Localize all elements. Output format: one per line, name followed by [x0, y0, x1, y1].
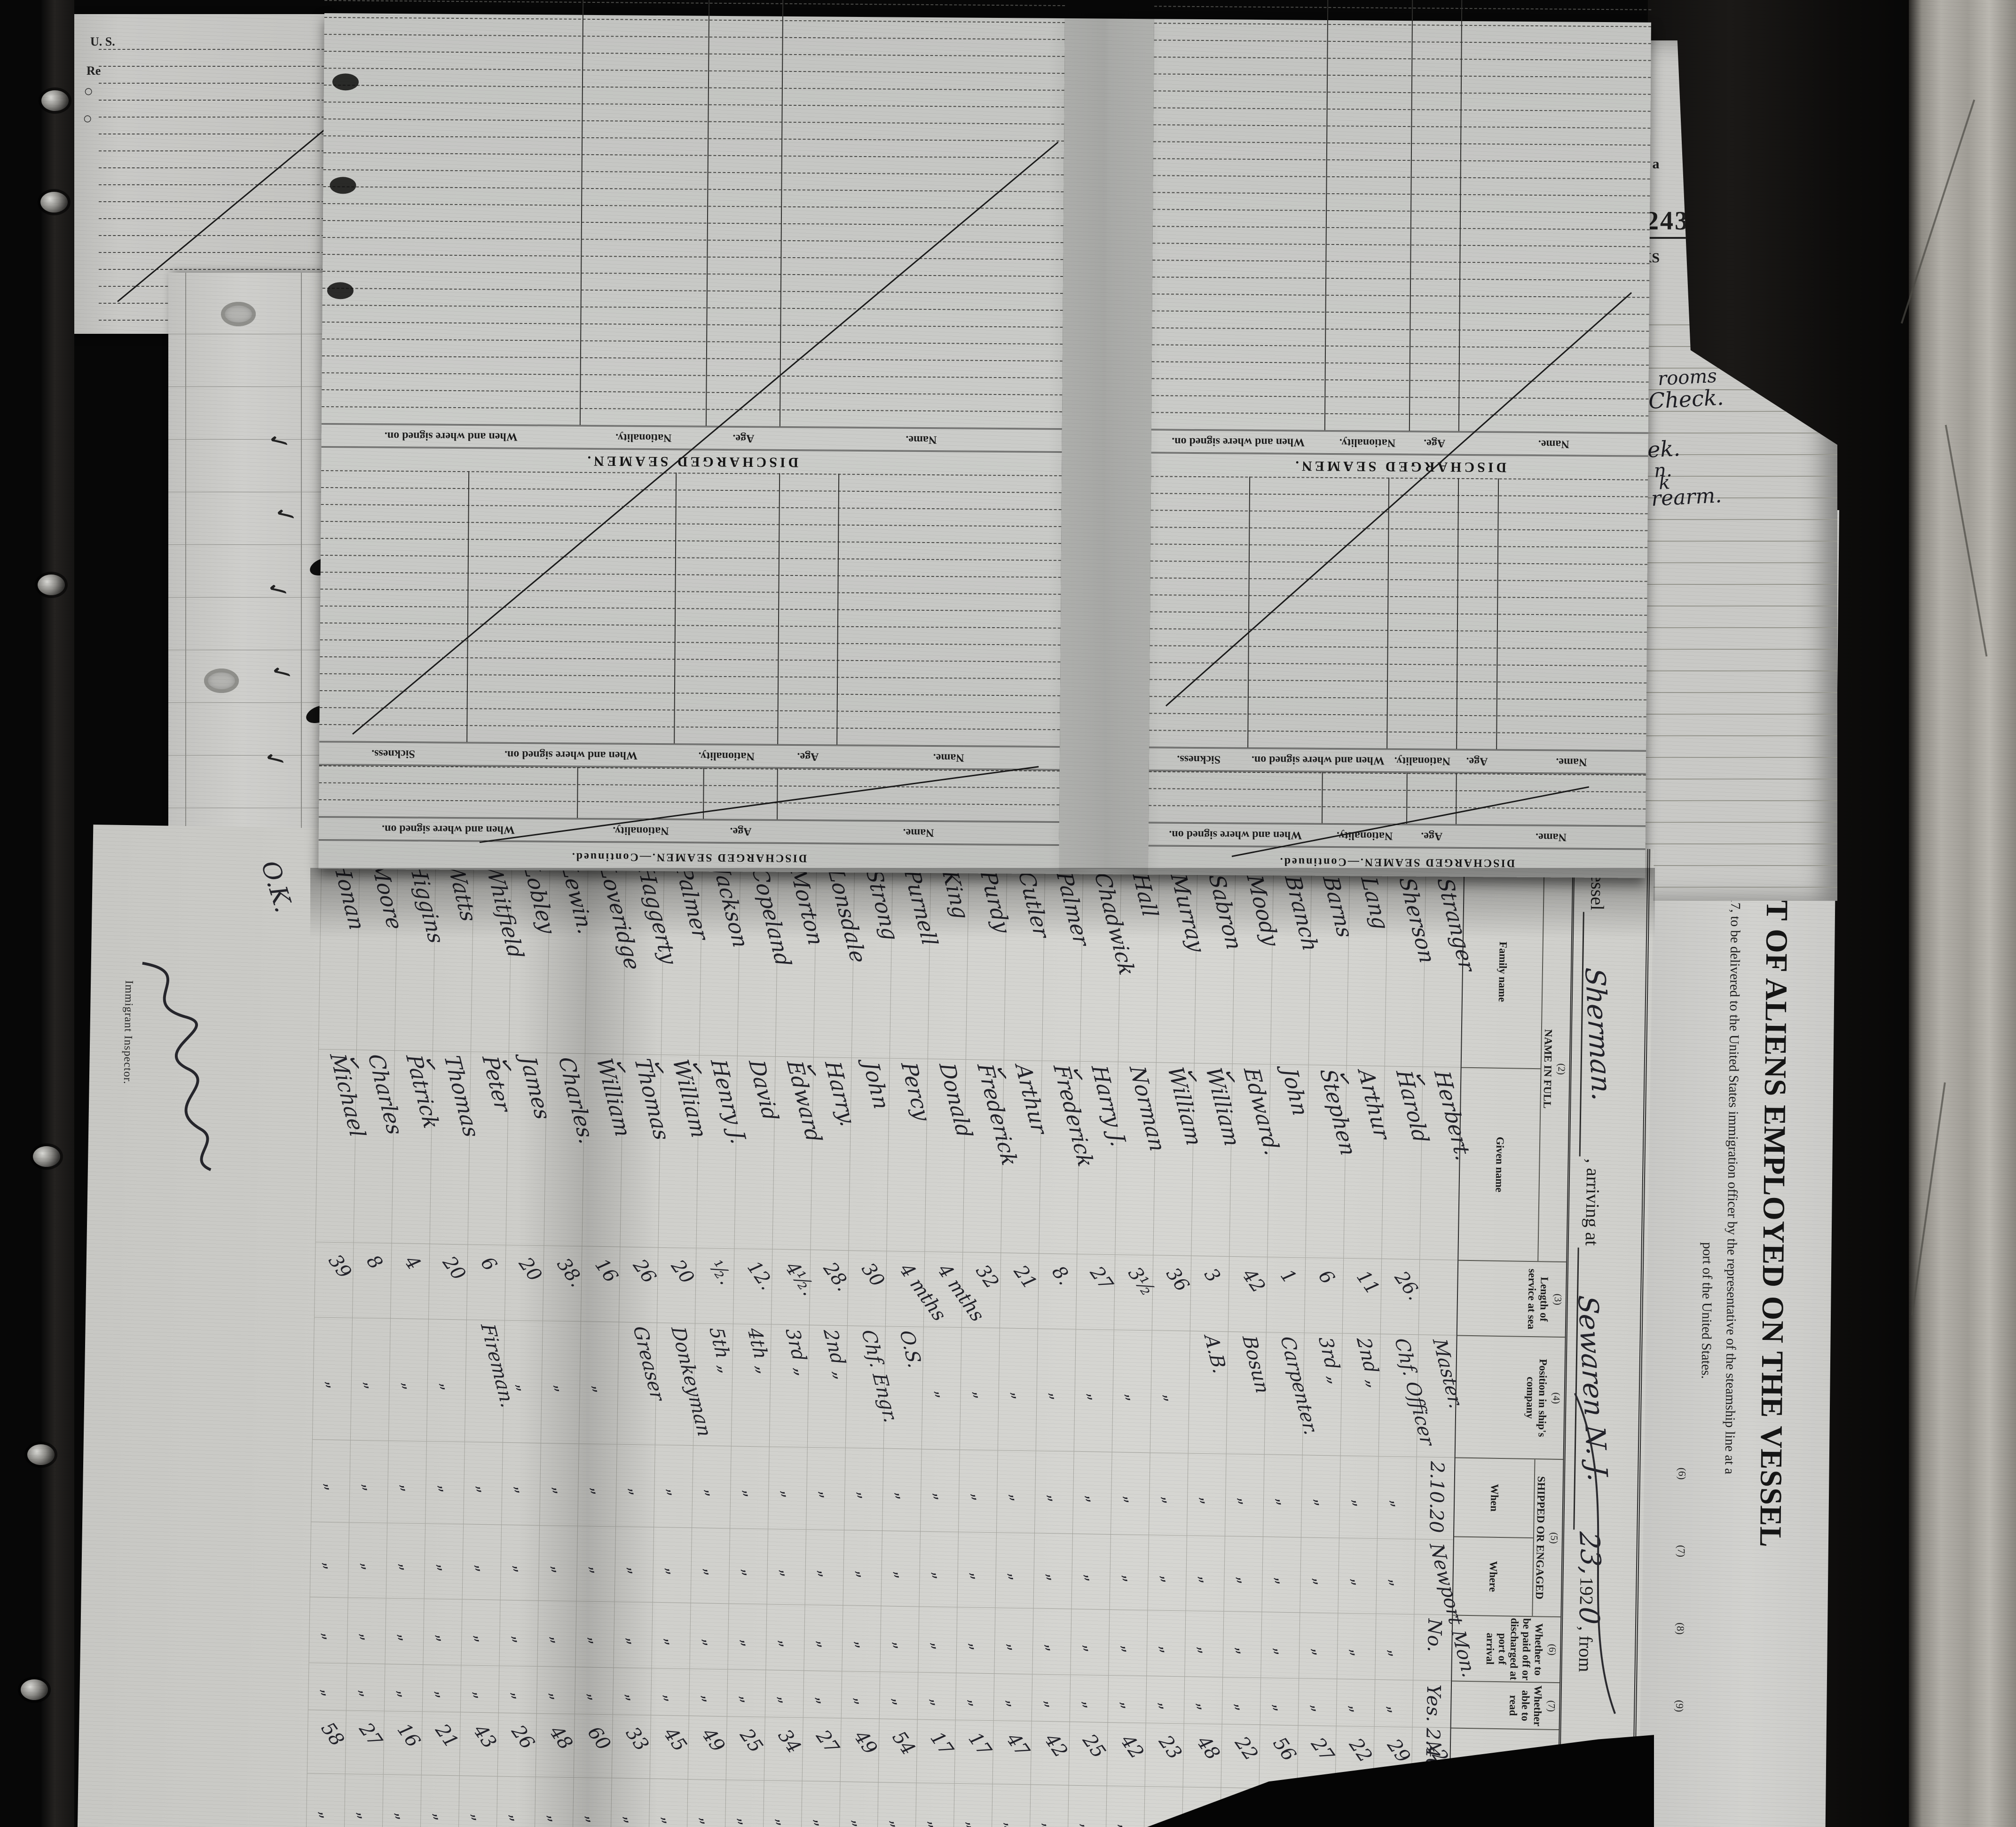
- sex-value: „: [496, 1776, 535, 1827]
- paid-off: „: [1071, 1609, 1109, 1675]
- paid-off: „: [614, 1601, 652, 1668]
- shipped-when: „: [311, 1439, 350, 1522]
- col-shipped-or-engaged: (5) SHIPPED OR ENGAGED When Where: [1453, 1457, 1563, 1617]
- able-to-read: „: [423, 1664, 461, 1712]
- shipped-where: „: [767, 1529, 806, 1605]
- family-name: Branch: [1271, 871, 1311, 1064]
- paid-off: „: [728, 1603, 766, 1669]
- family-name: Lonsdale: [814, 864, 854, 1057]
- shipped-where: „: [920, 1531, 959, 1607]
- position-in-company: 3rd „: [770, 1324, 809, 1447]
- shipped-where: „: [539, 1525, 578, 1601]
- ledger-column-headers: Name.Age.Nationality.When and where sign…: [1149, 822, 1646, 850]
- under-manifest-strip: ✓ ✓ ✓ ✓ ✓: [168, 273, 334, 898]
- position-in-company: Chf. Engr.: [846, 1325, 885, 1448]
- service-at-sea: 3: [1190, 1256, 1229, 1331]
- shipped-when: „: [464, 1441, 503, 1524]
- age-value: 25: [1069, 1722, 1108, 1786]
- hole-circle: ○: [83, 110, 93, 128]
- age-value: 48: [536, 1713, 575, 1777]
- sex-value: „: [877, 1782, 916, 1827]
- shipped-where: Newport Mon.: [1414, 1539, 1453, 1614]
- paid-off: „: [880, 1606, 919, 1672]
- given-name: Patrick✓: [392, 1050, 433, 1244]
- paid-off: „: [309, 1597, 347, 1663]
- age-value: 58: [307, 1709, 346, 1773]
- sex-value: „: [573, 1777, 611, 1827]
- shipped-where: „: [501, 1525, 540, 1600]
- shipped-where: „: [843, 1530, 882, 1606]
- sex-value: „: [687, 1779, 725, 1827]
- col7-label: Whether able to read: [1507, 1682, 1544, 1729]
- position-in-company: Chf. Officer: [1379, 1334, 1418, 1457]
- age-value: 47: [993, 1720, 1032, 1784]
- position-in-company: „: [541, 1321, 581, 1443]
- sex-value: „: [763, 1780, 802, 1827]
- ledger-column-label: When and where signed on.: [467, 748, 675, 762]
- sex-value: „: [420, 1775, 459, 1827]
- ledger-column-label: Nationality.: [1325, 436, 1410, 449]
- paid-off: „: [499, 1600, 538, 1666]
- shipped-where: „: [348, 1522, 387, 1598]
- paid-off: „: [1109, 1609, 1147, 1676]
- checkmark-icon: ✓: [261, 427, 295, 457]
- shipped-when: „: [806, 1447, 845, 1530]
- sex-value: „: [801, 1781, 840, 1827]
- paid-off: „: [1185, 1611, 1223, 1677]
- shipped-when: „: [1111, 1452, 1150, 1535]
- service-at-sea: 20: [429, 1244, 468, 1319]
- able-to-read: „: [956, 1673, 994, 1720]
- age-value: 48: [1183, 1724, 1222, 1788]
- service-at-sea: 12.: [733, 1248, 772, 1324]
- position-in-company: 2nd „: [1341, 1333, 1380, 1456]
- ledger-column-label: Age.: [778, 750, 837, 763]
- paid-off: „: [956, 1607, 995, 1673]
- shipped-when: „: [349, 1440, 388, 1523]
- able-to-read: „: [1184, 1677, 1223, 1724]
- family-name: Lewin.: [547, 860, 588, 1053]
- able-to-read: „: [765, 1670, 804, 1717]
- position-in-company: „: [427, 1319, 466, 1441]
- col-able-to-read: (7) Whether able to read: [1451, 1680, 1560, 1729]
- shipped-where: „: [1033, 1533, 1072, 1608]
- service-at-sea: 6: [467, 1244, 506, 1320]
- given-name: Harold✓: [1382, 1066, 1422, 1259]
- service-at-sea: 4: [391, 1243, 430, 1319]
- paid-off: „: [1261, 1612, 1299, 1678]
- shipped-where: „: [1071, 1534, 1110, 1609]
- given-name: Peter✓: [468, 1052, 508, 1245]
- ledger-column-label: Age.: [1407, 830, 1457, 843]
- able-to-read: „: [1299, 1678, 1337, 1725]
- family-name: Purdy: [966, 866, 1007, 1060]
- age-value: 33: [612, 1714, 651, 1778]
- able-to-read: „: [537, 1666, 575, 1714]
- binder-spine: [41, 0, 74, 1827]
- able-to-read: „: [346, 1663, 385, 1711]
- arriving-label: , arriving at: [1582, 1158, 1604, 1246]
- where-label: Where: [1453, 1536, 1533, 1616]
- given-name: Stephen✓: [1306, 1065, 1346, 1258]
- col6-label: Whether to be paid off or discharged at …: [1483, 1616, 1545, 1682]
- shipped-where: „: [1376, 1538, 1415, 1614]
- ledger-dashed-rows: [1151, 0, 1652, 433]
- ledger-column-label: Nationality.: [581, 431, 707, 444]
- position-in-company: „: [922, 1327, 961, 1449]
- binder-rivet: [33, 1146, 60, 1167]
- ledger-dashed-rows: [1149, 476, 1648, 750]
- shipped-when: „: [502, 1442, 541, 1525]
- paid-off: „: [918, 1606, 957, 1673]
- position-in-company: „: [351, 1318, 390, 1441]
- sex-value: „: [725, 1780, 764, 1827]
- hole-circle: ○: [84, 83, 94, 101]
- sex-value: „: [535, 1777, 573, 1827]
- family-name: Barns: [1309, 872, 1349, 1065]
- ledger-column-label: Name.: [1457, 830, 1646, 844]
- col7-marker: (7): [1545, 1700, 1557, 1712]
- vessel-name-entry: Sherman.: [1579, 912, 1616, 1157]
- paid-off: „: [766, 1604, 804, 1670]
- age-value: 43: [460, 1712, 498, 1776]
- age-value: 17: [917, 1719, 955, 1783]
- ledger-column-label: Age.: [1410, 437, 1459, 450]
- age-value: 42: [1031, 1721, 1070, 1785]
- paid-off: „: [804, 1605, 843, 1671]
- shipped-where: „: [691, 1528, 730, 1603]
- service-at-sea: 11: [1343, 1258, 1382, 1334]
- binder-rivet: [40, 192, 68, 213]
- shipped-when: „: [1263, 1454, 1302, 1537]
- family-name: Stranger: [1423, 874, 1464, 1067]
- shipped-when: „: [578, 1443, 617, 1526]
- shipped-where: „: [386, 1523, 425, 1599]
- binder-rivet: [38, 575, 65, 595]
- paid-off: „: [1299, 1612, 1338, 1678]
- sex-value: „: [649, 1779, 687, 1827]
- shipped-where: „: [1186, 1536, 1225, 1611]
- col-length-of-service: (3) Length of service at sea: [1457, 1260, 1566, 1337]
- inspector-label: Immigrant Inspector.: [121, 980, 135, 1085]
- position-in-company: A.B.: [1189, 1331, 1228, 1454]
- shipped-where: „: [1300, 1537, 1339, 1613]
- shipped-where: „: [425, 1523, 464, 1599]
- able-to-read: „: [1070, 1675, 1109, 1722]
- sex-value: „: [611, 1778, 649, 1827]
- given-name: John: [849, 1057, 889, 1251]
- position-in-company: 4th „: [732, 1323, 771, 1446]
- service-at-sea: [1419, 1259, 1458, 1335]
- able-to-read: „: [308, 1662, 347, 1710]
- given-name: Michael✓: [316, 1049, 356, 1242]
- family-name: Purnell: [890, 866, 930, 1059]
- service-at-sea: 4 mths: [886, 1251, 925, 1326]
- position-in-company: „: [960, 1327, 1000, 1450]
- sex-value: „: [344, 1774, 383, 1827]
- ledger-column-label: Name.: [778, 825, 1059, 840]
- shipped-when: „: [997, 1450, 1036, 1533]
- ledger-column-label: Age.: [707, 432, 781, 445]
- able-to-read: „: [1260, 1677, 1299, 1725]
- able-to-read: „: [1146, 1676, 1185, 1723]
- service-at-sea: 16: [581, 1246, 620, 1322]
- shipped-where: „: [1224, 1536, 1263, 1612]
- service-at-sea: 30: [848, 1250, 887, 1326]
- discharged-seamen-ledger: DISCHARGED SEAMEN.—Continued.Name.Age.Na…: [318, 13, 1651, 878]
- shipped-where: „: [1262, 1536, 1301, 1612]
- col-position: (4) Position in ship's company: [1456, 1335, 1565, 1459]
- col5-label: SHIPPED OR ENGAGED: [1533, 1476, 1547, 1599]
- shipped-when: „: [768, 1447, 807, 1529]
- family-name: Higgins: [395, 858, 435, 1051]
- service-at-sea: 36: [1152, 1255, 1191, 1331]
- handwriting-fragment: rearm.: [1651, 483, 1723, 511]
- able-to-read: „: [499, 1666, 537, 1713]
- shipped-when: „: [921, 1449, 960, 1532]
- inspector-signature: [130, 952, 228, 1179]
- paid-off: „: [347, 1598, 386, 1664]
- family-name: King: [928, 866, 969, 1059]
- pen-flourish: [1565, 1388, 1627, 1718]
- family-name: Jackson: [700, 862, 740, 1055]
- position-in-company: „: [1074, 1329, 1114, 1452]
- sex-value: „: [382, 1774, 421, 1827]
- age-value: 34: [764, 1717, 803, 1781]
- able-to-read: „: [689, 1669, 728, 1716]
- ledger-column-label: Age.: [1457, 755, 1497, 768]
- sex-value: „: [953, 1783, 992, 1827]
- shipped-when: „: [882, 1448, 921, 1531]
- service-at-sea: 27: [1076, 1254, 1115, 1330]
- service-at-sea: 39: [315, 1242, 354, 1317]
- age-value: 21: [422, 1711, 460, 1775]
- paid-off: „: [575, 1601, 614, 1667]
- able-to-read: „: [842, 1671, 880, 1718]
- shipped-where: „: [577, 1526, 616, 1601]
- ledger-column-label: When and where signed on.: [1149, 828, 1323, 842]
- ledger-column-label: When and where signed on.: [1248, 753, 1387, 767]
- checkmark-icon: ✓: [258, 745, 291, 775]
- service-at-sea: 3½: [1114, 1254, 1153, 1330]
- given-name: Frederick✓: [1039, 1061, 1079, 1254]
- age-value: 49: [688, 1716, 727, 1780]
- service-at-sea: 20: [505, 1245, 544, 1321]
- given-name: Edward✓: [772, 1056, 813, 1250]
- ledger-column-label: Age.: [704, 825, 778, 838]
- position-in-company: „: [1150, 1330, 1190, 1453]
- service-at-sea: 8.: [1038, 1253, 1077, 1329]
- marker-7: (7): [1675, 1545, 1687, 1557]
- paid-off: „: [842, 1605, 881, 1671]
- sex-value: „: [1068, 1785, 1106, 1827]
- shipped-where: „: [1110, 1534, 1149, 1610]
- family-name: Chadwick: [1080, 868, 1121, 1062]
- position-in-company: Bosun: [1227, 1331, 1266, 1454]
- position-in-company: Fireman.: [465, 1319, 504, 1442]
- able-to-read: „: [1032, 1674, 1071, 1721]
- col4-label: Position in ship's company: [1523, 1337, 1550, 1459]
- shipped-when: „: [1339, 1456, 1378, 1538]
- shipped-where: „: [729, 1528, 768, 1604]
- ledger-column-label: When and where signed on.: [1151, 435, 1325, 449]
- family-name-label: Family name: [1462, 875, 1544, 1069]
- col3-marker: (3): [1552, 1293, 1564, 1305]
- family-name: Murray: [1157, 869, 1197, 1063]
- paid-off: „: [690, 1603, 728, 1669]
- age-value: 27: [803, 1717, 841, 1781]
- age-value: 25: [726, 1716, 765, 1780]
- ledger-column-headers: Name.Age.Nationality.When and where sign…: [1151, 429, 1648, 457]
- paid-off: „: [994, 1607, 1033, 1674]
- shipped-when: „: [692, 1445, 731, 1528]
- shipped-when: „: [1187, 1453, 1226, 1536]
- service-at-sea: ½.: [695, 1248, 734, 1323]
- position-in-company: „: [579, 1321, 619, 1444]
- age-value: 49: [841, 1718, 879, 1782]
- paid-off: „: [461, 1599, 500, 1665]
- position-in-company: Greaser: [617, 1322, 657, 1445]
- sex-value: „: [306, 1773, 345, 1827]
- position-in-company: „: [998, 1328, 1038, 1450]
- given-name: Percy: [887, 1058, 927, 1252]
- able-to-read: „: [1375, 1679, 1413, 1727]
- service-at-sea: 38.: [543, 1245, 582, 1321]
- paid-off: „: [1032, 1608, 1071, 1674]
- shipped-when: „: [1378, 1456, 1417, 1539]
- marker-6: (6): [1676, 1467, 1688, 1480]
- able-to-read: „: [994, 1673, 1032, 1721]
- marker-9: (9): [1673, 1700, 1685, 1712]
- age-value: 42: [1107, 1722, 1146, 1786]
- sex-value: „: [1106, 1786, 1144, 1827]
- checkmark-icon: ✓: [264, 659, 298, 688]
- marble-vein: [1911, 1082, 1946, 1315]
- shipped-where: „: [310, 1521, 349, 1597]
- able-to-read: „: [880, 1671, 918, 1719]
- marble-vein: [1945, 425, 1988, 656]
- family-name: Cutler: [1004, 867, 1045, 1060]
- handwriting-fragment: ek.: [1647, 435, 1681, 463]
- marker-8: (8): [1674, 1622, 1686, 1635]
- given-name-label: Given name: [1458, 1067, 1541, 1261]
- page-number-243: 243: [1646, 206, 1689, 239]
- able-to-read: „: [613, 1667, 652, 1715]
- ledger-continued-title: DISCHARGED SEAMEN.—Continued.: [318, 841, 1059, 874]
- ledger-left-page: DISCHARGED SEAMEN.—Continued.Name.Age.Na…: [318, 13, 1065, 874]
- family-name: Loveridge: [585, 860, 626, 1054]
- service-at-sea: 1: [1267, 1257, 1306, 1332]
- book-marbled-edge: [1909, 0, 2016, 1827]
- position-in-company: „: [389, 1318, 428, 1441]
- service-at-sea: 8: [353, 1243, 392, 1318]
- family-name: Watts: [433, 858, 473, 1051]
- given-name: John: [1268, 1064, 1308, 1257]
- position-in-company: „: [313, 1317, 352, 1440]
- ledger-section-title: DISCHARGED SEAMEN.: [1151, 453, 1648, 479]
- shipped-where: „: [882, 1530, 921, 1606]
- shipped-when: „: [1073, 1451, 1112, 1534]
- paid-off: „: [1147, 1610, 1185, 1676]
- shipped-when: „: [387, 1441, 426, 1523]
- able-to-read: „: [385, 1664, 423, 1711]
- age-value: 27: [346, 1710, 384, 1774]
- position-in-company: „: [1036, 1329, 1076, 1451]
- shipped-when: „: [1225, 1454, 1264, 1536]
- given-name: Charles.: [544, 1053, 584, 1246]
- able-to-read: „: [575, 1667, 614, 1714]
- shipped-where: „: [463, 1524, 502, 1599]
- paid-off: „: [537, 1600, 576, 1667]
- family-name: Honan: [319, 856, 359, 1049]
- sex-value: „: [992, 1784, 1030, 1827]
- paid-off: „: [1375, 1614, 1414, 1680]
- microfilm-scan: U. S. Re ○ ○ ✓ ✓ ✓ ✓ ✓ Local Agents ____…: [0, 0, 2016, 1827]
- shipped-where: „: [995, 1532, 1034, 1608]
- col2-marker: (2): [1555, 1063, 1567, 1075]
- family-name: Moody: [1233, 871, 1273, 1064]
- checkmark-icon: ✓: [260, 576, 294, 606]
- sex-value: „: [1030, 1784, 1068, 1827]
- ok-annotation: O.K.: [255, 858, 298, 916]
- manifest-header: (1) No. on list (2) NAME IN FULL Family …: [1448, 846, 1575, 1827]
- shipped-when: „: [540, 1443, 579, 1526]
- shipped-where: „: [1338, 1538, 1377, 1614]
- ledger-dashed-rows: [322, 0, 1065, 428]
- age-value: 60: [574, 1714, 613, 1778]
- able-to-read: Yes. 2.40.: [1413, 1680, 1451, 1727]
- manifest-rows: 1StrangerHerbert.Master.2.10.20Newport M…: [306, 828, 1464, 1827]
- family-name: Palmer: [1042, 868, 1083, 1061]
- punch-hole: [221, 302, 256, 326]
- able-to-read: „: [918, 1672, 956, 1720]
- vessel-name: Sherman.: [1579, 967, 1618, 1102]
- ledger-column-label: Name.: [837, 750, 1060, 764]
- column-markers: (6) (7) (8) (9): [1673, 1467, 1688, 1712]
- shipped-where: „: [653, 1527, 692, 1603]
- shipped-when: „: [425, 1441, 465, 1524]
- family-name: Sherson: [1385, 873, 1425, 1066]
- able-to-read: „: [1108, 1675, 1147, 1723]
- sex-value: „: [915, 1783, 954, 1827]
- given-name: Norman: [1115, 1062, 1156, 1255]
- given-name: Donald: [925, 1059, 965, 1252]
- ledger-column-label: Name.: [1497, 755, 1646, 769]
- position-in-company: 2nd „: [808, 1325, 847, 1448]
- ledger-dashed-rows: [1149, 771, 1646, 825]
- inspector-signature-block: Immigrant Inspector.: [128, 952, 228, 1179]
- shipped-when: „: [1301, 1455, 1340, 1537]
- manifest-data-sheet: Vessel Sherman. , arriving at Sewaren N.…: [77, 825, 1654, 1827]
- given-name: David: [734, 1055, 775, 1249]
- ledger-column-label: When and where signed on.: [322, 429, 581, 443]
- ledger-column-label: Name.: [1459, 437, 1648, 451]
- col-name-in-full: (2) NAME IN FULL Family name Given name: [1458, 874, 1572, 1261]
- col6-marker: (6): [1546, 1644, 1558, 1655]
- binder-rivet: [21, 1679, 48, 1700]
- able-to-read: „: [1222, 1677, 1261, 1725]
- given-name: Frederick✓: [963, 1059, 1003, 1252]
- age-value: 23: [1145, 1723, 1184, 1787]
- shipped-when: 2.10.20: [1416, 1457, 1455, 1539]
- service-at-sea: 42: [1228, 1256, 1268, 1332]
- family-name: Whitfield: [471, 859, 512, 1052]
- ledger-dashed-rows: [319, 470, 1062, 746]
- able-to-read: „: [461, 1665, 499, 1712]
- ledger-column-label: Sickness.: [1149, 753, 1249, 766]
- col2-label: NAME IN FULL: [1541, 1029, 1554, 1109]
- able-to-read: „: [727, 1669, 766, 1717]
